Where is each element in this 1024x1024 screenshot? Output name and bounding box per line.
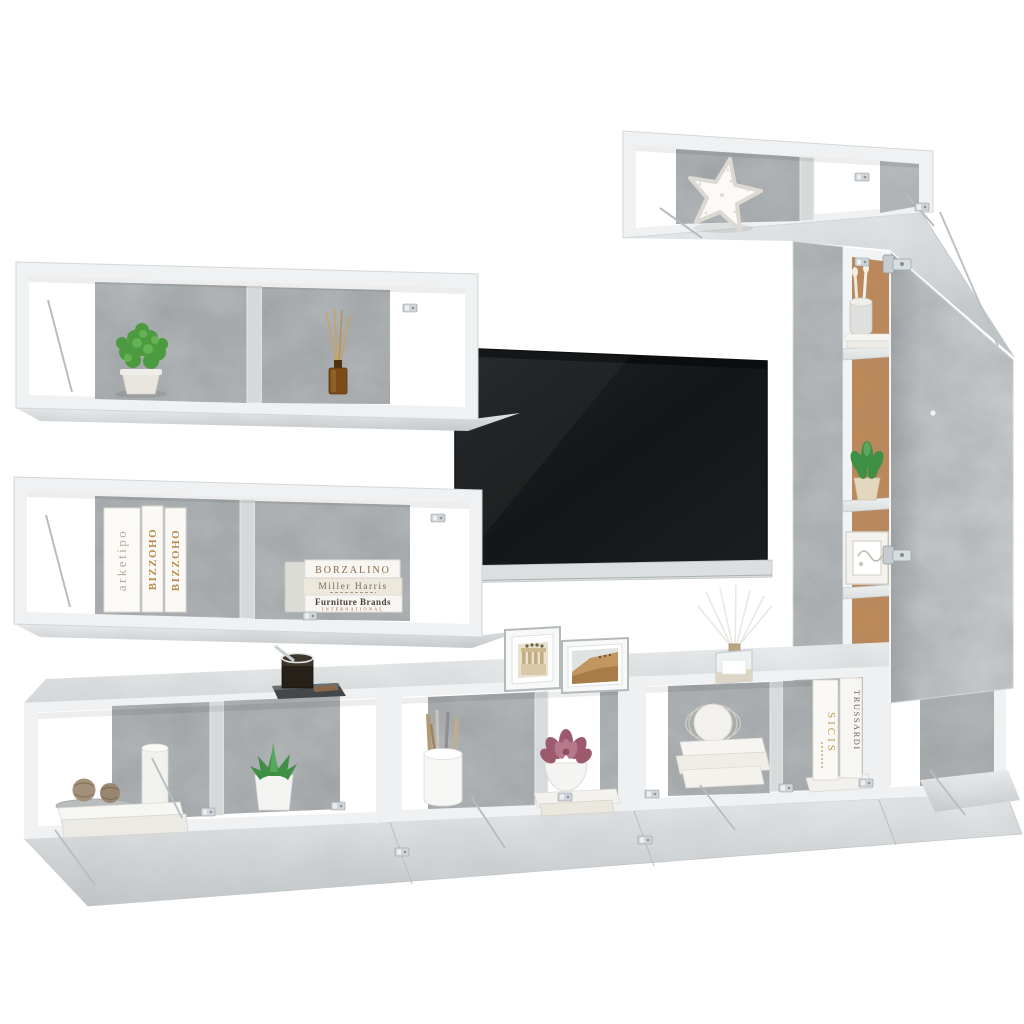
book-cover-title: Miller Harris <box>318 582 387 592</box>
wall-shelf-top-left <box>16 262 520 431</box>
candle-cylinder <box>142 744 168 810</box>
metal-bracket <box>855 258 869 266</box>
door-knob <box>930 410 936 416</box>
book-spine-label: BIZZOHO <box>147 528 159 590</box>
picture-frame-gate <box>505 627 560 691</box>
stacked-white-books <box>676 738 770 788</box>
metal-hinge <box>395 848 409 856</box>
metal-hinge <box>859 779 873 787</box>
side-panel <box>793 241 843 692</box>
metal-hinge <box>638 836 652 844</box>
back-panel <box>262 287 390 404</box>
book-spine-label: TRUSSARDI <box>852 690 862 751</box>
side-panel-inner <box>880 161 919 213</box>
metal-hinge <box>558 793 572 801</box>
book-spine-label: SICIS <box>825 712 837 754</box>
book-cover-title: BORZALINO <box>315 565 391 576</box>
standing-books: arketipo BIZZOHO BIZZOHO <box>104 506 186 612</box>
metal-bracket <box>403 304 417 312</box>
book-cover-subtitle: INTERNATIONAL <box>322 607 384 612</box>
divider <box>770 681 783 792</box>
metal-hinge <box>645 790 659 798</box>
metal-hinge <box>201 808 215 816</box>
book-cover-title: Furniture Brands <box>315 597 391 607</box>
cabinet-box-2 <box>402 686 620 816</box>
wall-shelf-mid-left: arketipo BIZZOHO BIZZOHO BORZALINO Mille… <box>14 477 524 648</box>
metal-hinge <box>779 784 793 792</box>
metal-hinge <box>331 802 345 810</box>
divider <box>210 701 224 816</box>
divider <box>800 157 814 221</box>
metal-bracket <box>431 514 445 522</box>
ornate-picture-frame <box>846 532 888 584</box>
metal-bracket <box>855 173 869 181</box>
stacked-white-books <box>58 802 188 838</box>
divider <box>240 500 255 619</box>
back-panel <box>600 686 618 801</box>
book-spine-label: BIZZOHO <box>170 529 182 591</box>
flat-screen-tv <box>449 348 772 583</box>
metal-hinge <box>303 612 317 620</box>
product-image-tv-wall-unit: arketipo BIZZOHO BIZZOHO BORZALINO Mille… <box>0 0 1024 1024</box>
divider <box>535 691 548 804</box>
stacked-books: BORZALINO Miller Harris Furniture Brands… <box>285 560 402 612</box>
metal-bracket <box>915 203 929 211</box>
divider <box>247 286 262 403</box>
picture-frame-coast <box>562 638 628 693</box>
book-spine-label: arketipo <box>114 529 129 592</box>
tall-cabinet-open-door <box>883 252 1013 703</box>
